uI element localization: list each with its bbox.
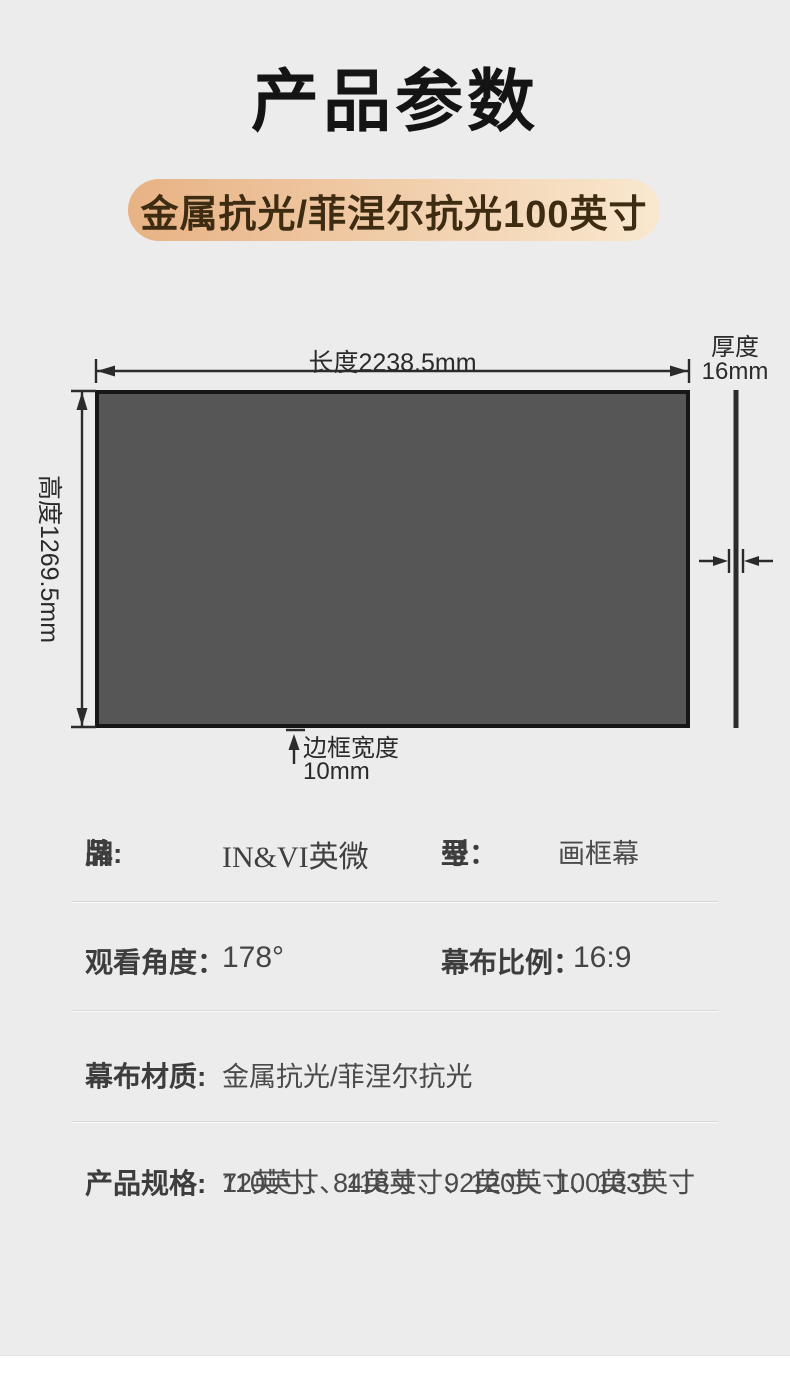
product-parameters-page: 产品参数 金属抗光/菲涅尔抗光100英寸 (0, 0, 790, 1398)
bottom-white-strip (0, 1355, 790, 1398)
view-angle-value: 178° (222, 941, 284, 975)
brand-value: IN&VI英微 (222, 832, 369, 876)
divider (72, 901, 718, 902)
spec-row-brand-model: 品 牌: IN&VI英微 型 号： 画框幕 (0, 832, 790, 868)
view-angle-label: 观看角度： (85, 941, 225, 981)
spec-row-material: 幕布材质: 金属抗光/菲涅尔抗光 (0, 1055, 790, 1091)
thickness-dimension-label: 厚度 16mm (692, 336, 778, 384)
spec-row-sizes: 产品规格: 72英寸、84英寸、92英寸、100英寸 110英寸、118英寸、1… (0, 1162, 790, 1262)
aspect-ratio-value: 16:9 (573, 941, 631, 975)
height-dimension-label: 高度1269.5mm (41, 389, 69, 729)
material-label: 幕布材质: (85, 1055, 206, 1095)
dimension-arrows (0, 330, 790, 800)
page-title: 产品参数 (0, 46, 790, 145)
divider (72, 1121, 718, 1122)
sizes-label: 产品规格: (85, 1162, 206, 1202)
divider (72, 1010, 718, 1011)
spec-row-angle-ratio: 观看角度： 178° 幕布比例： 16:9 (0, 941, 790, 977)
material-value: 金属抗光/菲涅尔抗光 (222, 1055, 473, 1094)
frame-width-dimension-label: 边框宽度 10mm (303, 737, 399, 783)
model-value: 画框幕 (558, 832, 639, 871)
spec-badge: 金属抗光/菲涅尔抗光100英寸 (128, 179, 660, 241)
length-dimension-label: 长度2238.5mm (95, 343, 690, 379)
aspect-ratio-label: 幕布比例： (441, 941, 581, 981)
